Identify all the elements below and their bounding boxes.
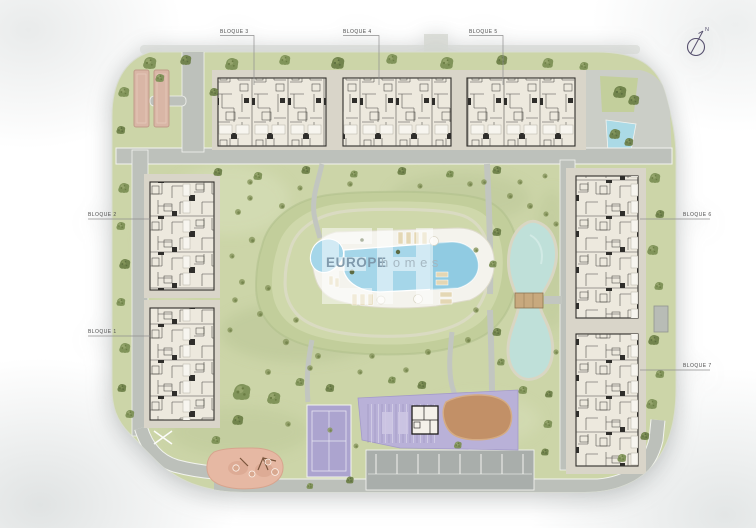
svg-text:BLOQUE 6: BLOQUE 6 (683, 212, 712, 218)
paddle-court (307, 405, 351, 477)
compass-north-icon: N (688, 27, 710, 56)
watermark-brand-primary: EUROPE (326, 255, 387, 270)
building-bloque-3[interactable] (218, 78, 326, 146)
brand-watermark: EUROPE homes (322, 228, 443, 304)
watermark-brand-secondary: homes (381, 255, 443, 270)
sand-area (443, 395, 511, 440)
svg-text:BLOQUE 7: BLOQUE 7 (683, 363, 712, 369)
parking-lot (366, 450, 534, 490)
building-bloque-6[interactable] (576, 176, 638, 318)
svg-text:BLOQUE 4: BLOQUE 4 (343, 29, 372, 35)
building-bloque-1[interactable] (150, 308, 214, 420)
pool-house-building (412, 406, 438, 434)
bridge (515, 293, 543, 308)
svg-text:BLOQUE 5: BLOQUE 5 (469, 29, 498, 35)
svg-text:BLOQUE 2: BLOQUE 2 (88, 212, 117, 218)
building-bloque-7[interactable] (576, 334, 638, 466)
building-bloque-4[interactable] (343, 78, 451, 146)
building-bloque-2[interactable] (150, 182, 214, 290)
building-bloque-5[interactable] (467, 78, 575, 146)
svg-text:BLOQUE 3: BLOQUE 3 (220, 29, 249, 35)
svg-text:BLOQUE 1: BLOQUE 1 (88, 329, 117, 335)
playground (207, 448, 283, 489)
compass-north-label: N (705, 27, 709, 33)
utility-box (654, 306, 668, 332)
sports-zone (358, 390, 518, 450)
site-plan-map: EUROPE homes BLOQUE 3 BLOQUE 4 BLOQUE 5 … (0, 0, 756, 528)
